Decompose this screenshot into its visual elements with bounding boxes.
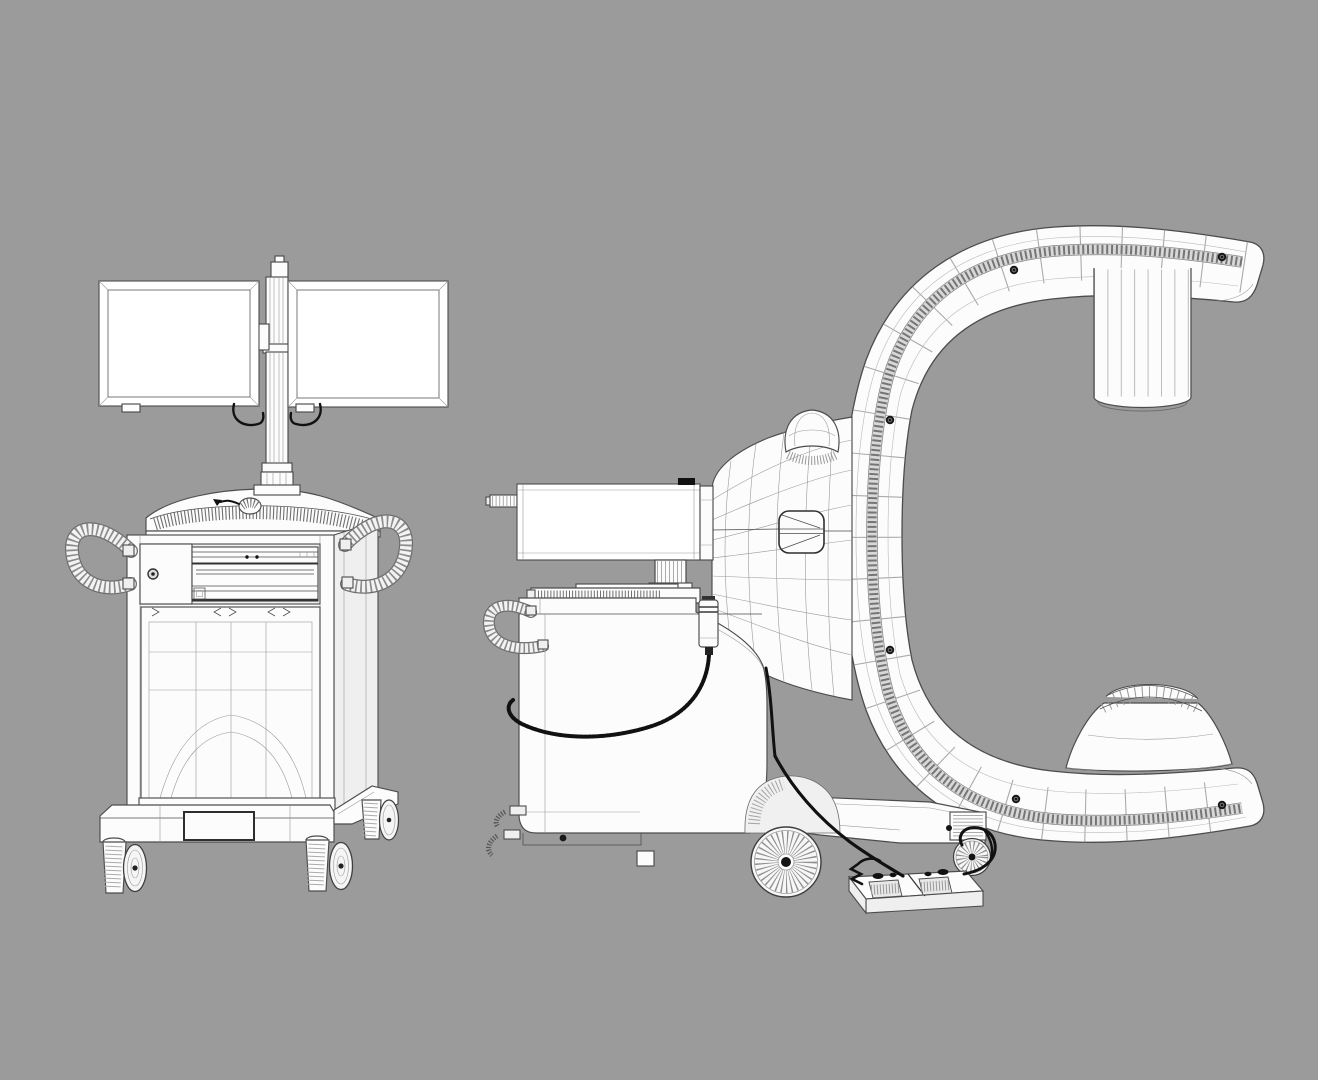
- c-gantry: [842, 226, 1264, 843]
- foot-pedal: [849, 869, 983, 913]
- keyboard-deck: [146, 485, 380, 537]
- front-panel: [139, 607, 335, 812]
- cabinet: [127, 521, 378, 812]
- view-side-carm: [486, 226, 1264, 913]
- drive-wheel: [745, 776, 840, 897]
- image-intensifier: [1094, 268, 1191, 415]
- service-panel: [779, 511, 824, 553]
- xray-tube: [1066, 684, 1232, 772]
- rear-wheel: [954, 839, 991, 876]
- monitor-left: [99, 281, 259, 412]
- power-button: [148, 569, 158, 579]
- monitor-right: [288, 281, 448, 412]
- handle-left: [72, 529, 134, 589]
- render-svg: [0, 0, 1318, 1080]
- wireframe-render-canvas: [0, 0, 1318, 1080]
- view-front-cart: [72, 256, 448, 893]
- flat-display: [486, 478, 713, 560]
- drawer-unit: [140, 544, 320, 604]
